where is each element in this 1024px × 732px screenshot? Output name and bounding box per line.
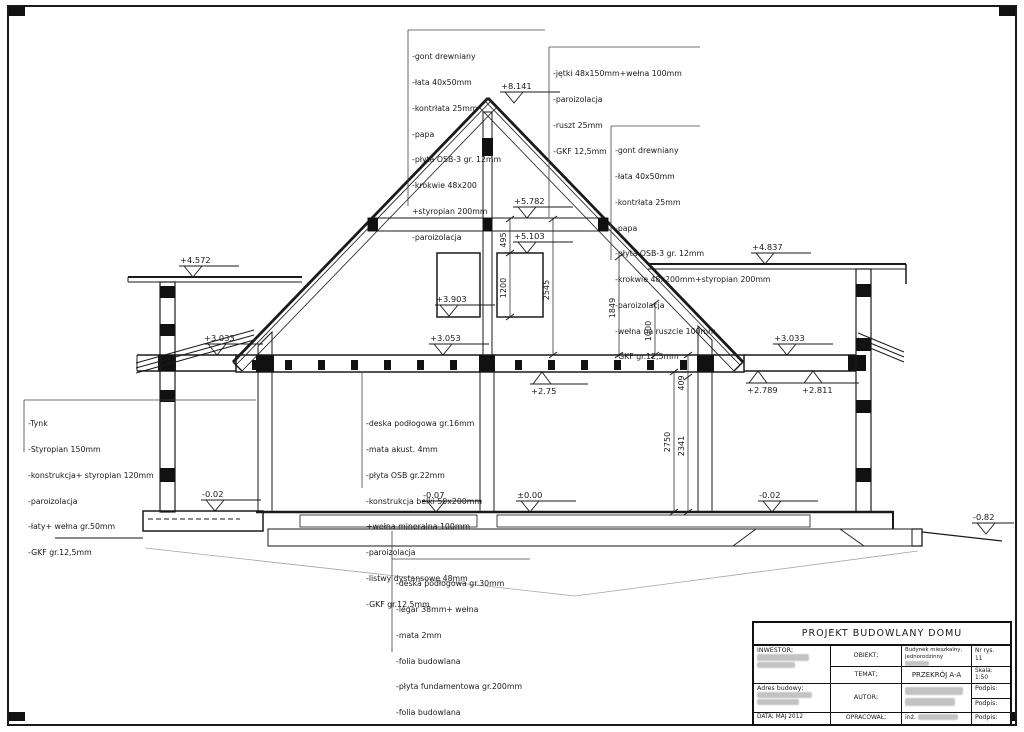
annotation-wall-left: -Tynk -Styropian 150mm -konstrukcja+ sty… [28, 403, 154, 566]
level-ceiling-underside-right2: +2.811 [801, 371, 859, 395]
nr-rys-cell: Nr rys. 11 [972, 646, 1010, 667]
svg-text:+8.141: +8.141 [501, 81, 532, 91]
level-attic-window-top: +5.103 [513, 231, 573, 253]
inwestor-label: INWESTOR; [757, 647, 793, 654]
dim-2750: 2750 [663, 432, 672, 452]
redacted-opracowal [918, 714, 958, 720]
dim-2341: 2341 [677, 436, 686, 456]
skala-label: Skala: [975, 668, 993, 674]
annotation-roof-right: -gont drewniany -łata 40x50mm -kontrłata… [615, 130, 771, 371]
opracowal-value-cell: inż. [902, 713, 972, 724]
redacted-adres-2 [757, 699, 799, 705]
obiekt-label: OBIEKT; [831, 646, 902, 667]
annotation-foundation: -deska podłogowa gr.30mm -legar 38mm+ we… [396, 563, 548, 732]
skala-value: 1:50 [975, 675, 988, 681]
level-floor-zero: ±0.00 [516, 490, 576, 512]
svg-text:+5.782: +5.782 [514, 196, 545, 206]
nr-rys-label: Nr rys. [975, 648, 994, 654]
title-block: PROJEKT BUDOWLANY DOMU JEDNORODZINNEGO I… [752, 621, 1012, 726]
level-ceiling-underside-right1: +2.789 [746, 371, 804, 395]
podpis-cell-3: Podpis: [972, 713, 1010, 724]
svg-text:+2.75: +2.75 [531, 386, 556, 396]
dim-2545: 2545 [542, 280, 551, 300]
temat-label: TEMAT; [831, 667, 902, 684]
level-attic-sill: +3.903 [435, 294, 495, 316]
svg-text:+3.033: +3.033 [774, 333, 805, 343]
podpis-cell-2: Podpis: [972, 699, 1010, 713]
dim-409: 409 [677, 375, 686, 390]
svg-text:+5.103: +5.103 [514, 231, 545, 241]
svg-text:-0.82: -0.82 [973, 512, 994, 522]
obiekt-value-cell: Budynek mieszkalny, jednorodzinny [902, 646, 972, 667]
autor-label: AUTOR; [831, 684, 902, 713]
redacted-adres-1 [757, 692, 812, 698]
left-wing [128, 277, 302, 512]
level-left-wing-top: +4.572 [179, 255, 239, 277]
opracowal-value: inż. [905, 714, 916, 721]
nr-rys-value: 11 [975, 656, 982, 662]
svg-text:+3.903: +3.903 [436, 294, 467, 304]
attic-windows [437, 253, 543, 317]
svg-text:+3.053: +3.053 [430, 333, 461, 343]
svg-text:+4.572: +4.572 [180, 255, 211, 265]
opracowal-label: OPRACOWAŁ; [831, 713, 902, 724]
svg-text:-0.02: -0.02 [759, 490, 780, 500]
data-cell: DATA; MAJ 2012 [754, 713, 831, 724]
level-ground-right: -0.82 [972, 512, 1014, 534]
level-ridge: +8.141 [500, 81, 560, 103]
adres-label: Adres budowy; [757, 685, 804, 692]
svg-text:±0.00: ±0.00 [517, 490, 542, 500]
level-ceiling-underside-center: +2.75 [530, 372, 588, 396]
temat-value: PRZEKRÓJ A-A [902, 667, 972, 684]
title-block-title: PROJEKT BUDOWLANY DOMU JEDNORODZINNEGO [754, 623, 1010, 646]
autor-value-cell [902, 684, 972, 713]
svg-text:+2.789: +2.789 [747, 385, 778, 395]
obiekt-value-2: jednorodzinny [905, 654, 943, 660]
level-terrace-right: -0.02 [758, 490, 818, 512]
drawing-sheet: 495 1200 2545 1849 1000 409 2750 2341 +8… [0, 0, 1024, 732]
level-terrace-left: -0.02 [201, 489, 261, 511]
level-collar: +5.782 [513, 196, 573, 218]
redacted-obiekt [905, 661, 929, 666]
level-ceiling-right: +3.033 [773, 333, 833, 355]
redacted-inwestor-1 [757, 654, 809, 661]
inwestor-cell-lower [754, 667, 831, 684]
annotation-roof-left: -gont drewniany -łata 40x50mm -kontrłata… [412, 36, 501, 251]
svg-text:-0.02: -0.02 [202, 489, 223, 499]
redacted-autor-1 [905, 687, 963, 695]
svg-text:+2.811: +2.811 [802, 385, 833, 395]
level-ceiling-center: +3.053 [429, 333, 489, 355]
podpis-cell-1: Podpis: [972, 684, 1010, 699]
svg-text:+3.033: +3.033 [204, 333, 235, 343]
adres-cell: Adres budowy; [754, 684, 831, 713]
obiekt-value-1: Budynek mieszkalny, [905, 647, 962, 653]
dim-1200: 1200 [499, 278, 508, 298]
redacted-autor-2 [905, 698, 955, 706]
skala-cell: Skala: 1:50 [972, 667, 1010, 684]
